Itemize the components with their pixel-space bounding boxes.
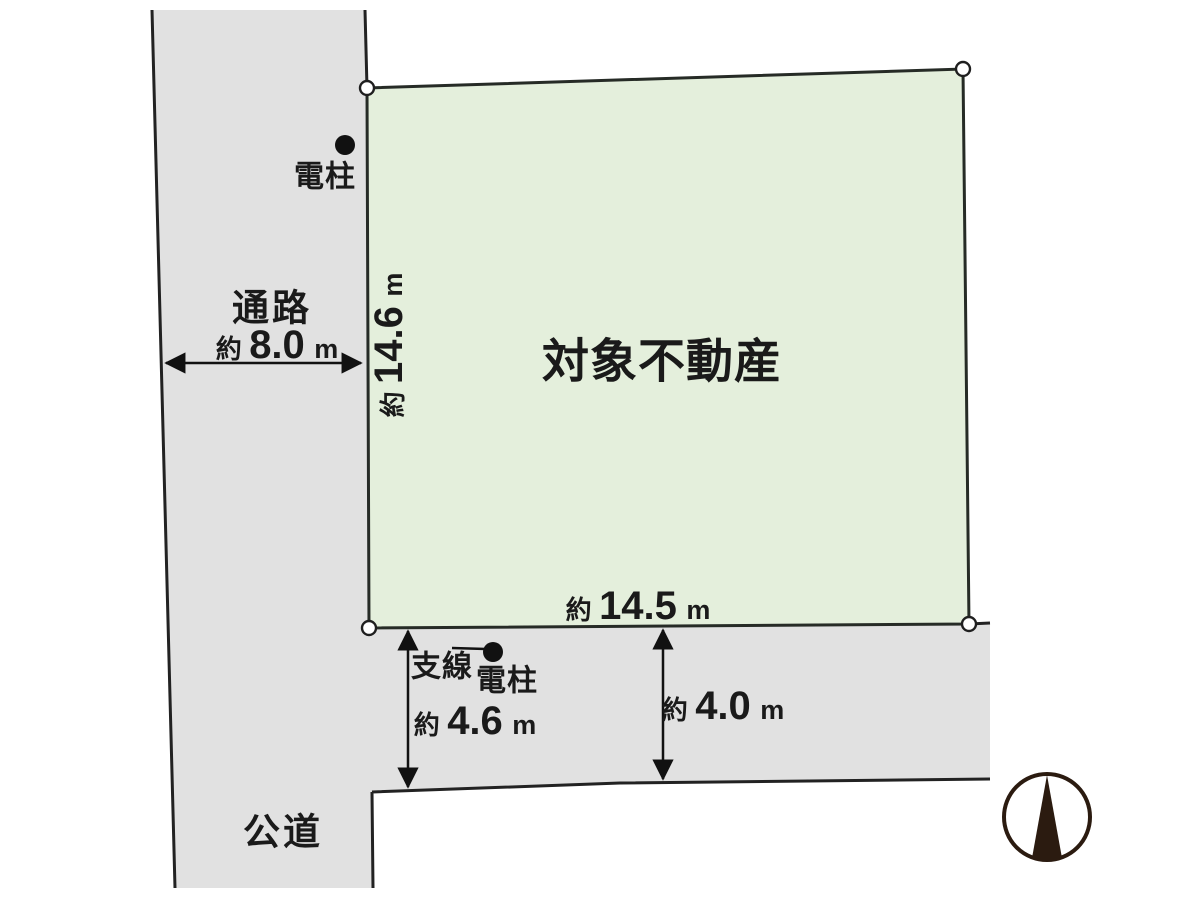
south-road-east-width-unit: m xyxy=(760,695,784,725)
south-road-east-width-prefix: 約 xyxy=(662,695,688,725)
guy-wire-line xyxy=(452,648,486,649)
utility-pole-dot-south xyxy=(483,642,503,662)
passage-width-value: 8.0 xyxy=(249,323,305,367)
parcel-south-dim-prefix: 約 xyxy=(566,595,592,625)
parcel-west-dim-value: 14.6 xyxy=(367,306,411,384)
south-road-west-width-value: 4.6 xyxy=(447,699,503,743)
plot-plan-diagram: 電柱 通路 約 8.0 m 約 14.6 m 対象不動産 約 14.5 m 支線… xyxy=(0,0,1200,900)
guy-wire-label: 支線 xyxy=(411,650,473,684)
passage-width-unit: m xyxy=(314,334,338,364)
utility-pole-label-south: 電柱 xyxy=(476,665,538,698)
parcel-south-dim-unit: m xyxy=(686,595,710,625)
parcel-west-dim-prefix: 約 xyxy=(378,391,408,417)
south-road-west-width-unit: m xyxy=(512,710,536,740)
utility-pole-label-north: 電柱 xyxy=(294,161,356,194)
passage-width-prefix: 約 xyxy=(216,334,242,364)
plot-plan-canvas: 電柱 通路 約 8.0 m 約 14.6 m 対象不動産 約 14.5 m 支線… xyxy=(0,0,1200,900)
south-road-west-width-prefix: 約 xyxy=(414,710,440,740)
south-road-east-width-value: 4.0 xyxy=(695,684,751,728)
parcel-vertex-marker-ne xyxy=(956,62,970,76)
parcel-vertex-marker-nw xyxy=(360,81,374,95)
parcel-south-dim-value: 14.5 xyxy=(599,584,677,628)
utility-pole-dot-north xyxy=(335,135,355,155)
parcel-west-dim-unit: m xyxy=(378,273,408,297)
parcel-vertex-marker-sw xyxy=(362,621,376,635)
parcel-title: 対象不動産 xyxy=(542,335,782,388)
public-road-label: 公道 xyxy=(243,812,323,853)
parcel-vertex-marker-se xyxy=(962,617,976,631)
